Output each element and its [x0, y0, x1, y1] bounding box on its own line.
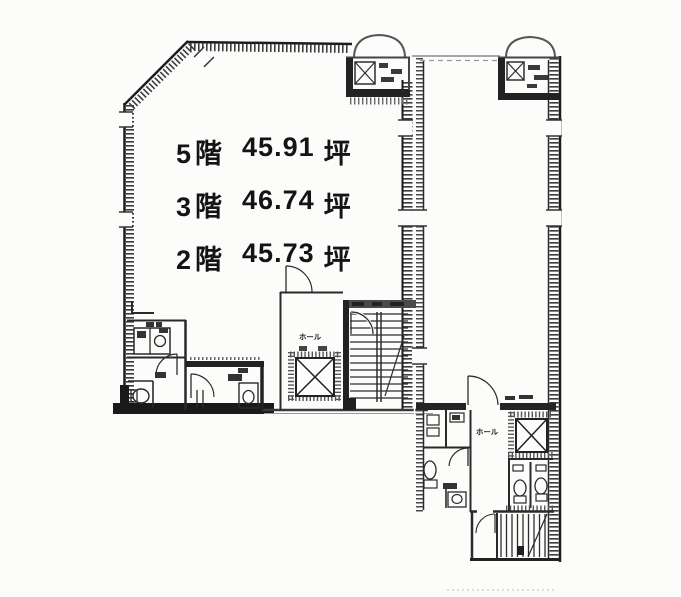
stairwell-annex	[470, 512, 561, 560]
floor-area-line-3f: 3階 46.74 坪	[176, 185, 352, 238]
floor-area-text-block: 5階 45.91 坪 3階 46.74 坪 2階 45.73 坪	[176, 132, 352, 291]
floor-label: 3階	[176, 185, 226, 224]
toilet-fixture	[131, 389, 149, 403]
floor-label: 2階	[176, 238, 226, 277]
machine-box-icon	[507, 62, 524, 80]
window-tick	[398, 210, 413, 226]
wc-room-middle	[186, 359, 264, 411]
window-tick	[398, 120, 413, 136]
area-unit: 坪	[324, 238, 352, 277]
floor-area-line-5f: 5階 45.91 坪	[176, 132, 352, 185]
window-tick	[119, 212, 133, 227]
window-tick	[412, 348, 427, 364]
floor-plan-drawing	[0, 0, 681, 597]
annex-building-outline	[412, 56, 560, 562]
area-value: 46.74	[242, 185, 315, 216]
window-tick	[119, 112, 133, 127]
wc-stalls-annex	[506, 458, 554, 512]
door-arc	[468, 376, 498, 405]
floor-label: 5階	[176, 132, 226, 171]
door-arc	[351, 312, 373, 334]
area-value: 45.73	[242, 238, 315, 269]
wc-block-annex	[424, 410, 471, 512]
hall-label-annex: ホール	[476, 429, 498, 436]
window-tick	[546, 120, 562, 136]
toilet-fixture	[514, 480, 526, 503]
elevator-shaft-main	[288, 352, 341, 400]
window-tick	[546, 210, 562, 226]
window-tick	[412, 210, 427, 226]
toilet-fixture	[424, 461, 437, 488]
sink-unit	[134, 328, 170, 354]
basin-fixture	[448, 492, 466, 507]
door-arc	[476, 514, 495, 533]
annex-lower-section	[416, 376, 561, 590]
door-arc	[449, 448, 468, 466]
service-rooms-left	[127, 301, 186, 410]
floor-area-line-2f: 2階 45.73 坪	[176, 238, 352, 291]
toilet-fixture	[535, 478, 547, 501]
floor-plan-page: 5階 45.91 坪 3階 46.74 坪 2階 45.73 坪 ホール ホール	[0, 0, 681, 597]
area-unit: 坪	[324, 185, 352, 224]
rooftop-structure-left	[346, 35, 410, 101]
area-value: 45.91	[242, 132, 315, 163]
elevator-shaft-annex	[508, 412, 553, 457]
machine-box-icon	[355, 62, 375, 84]
hall-label-main: ホール	[299, 334, 321, 341]
area-unit: 坪	[324, 132, 352, 171]
